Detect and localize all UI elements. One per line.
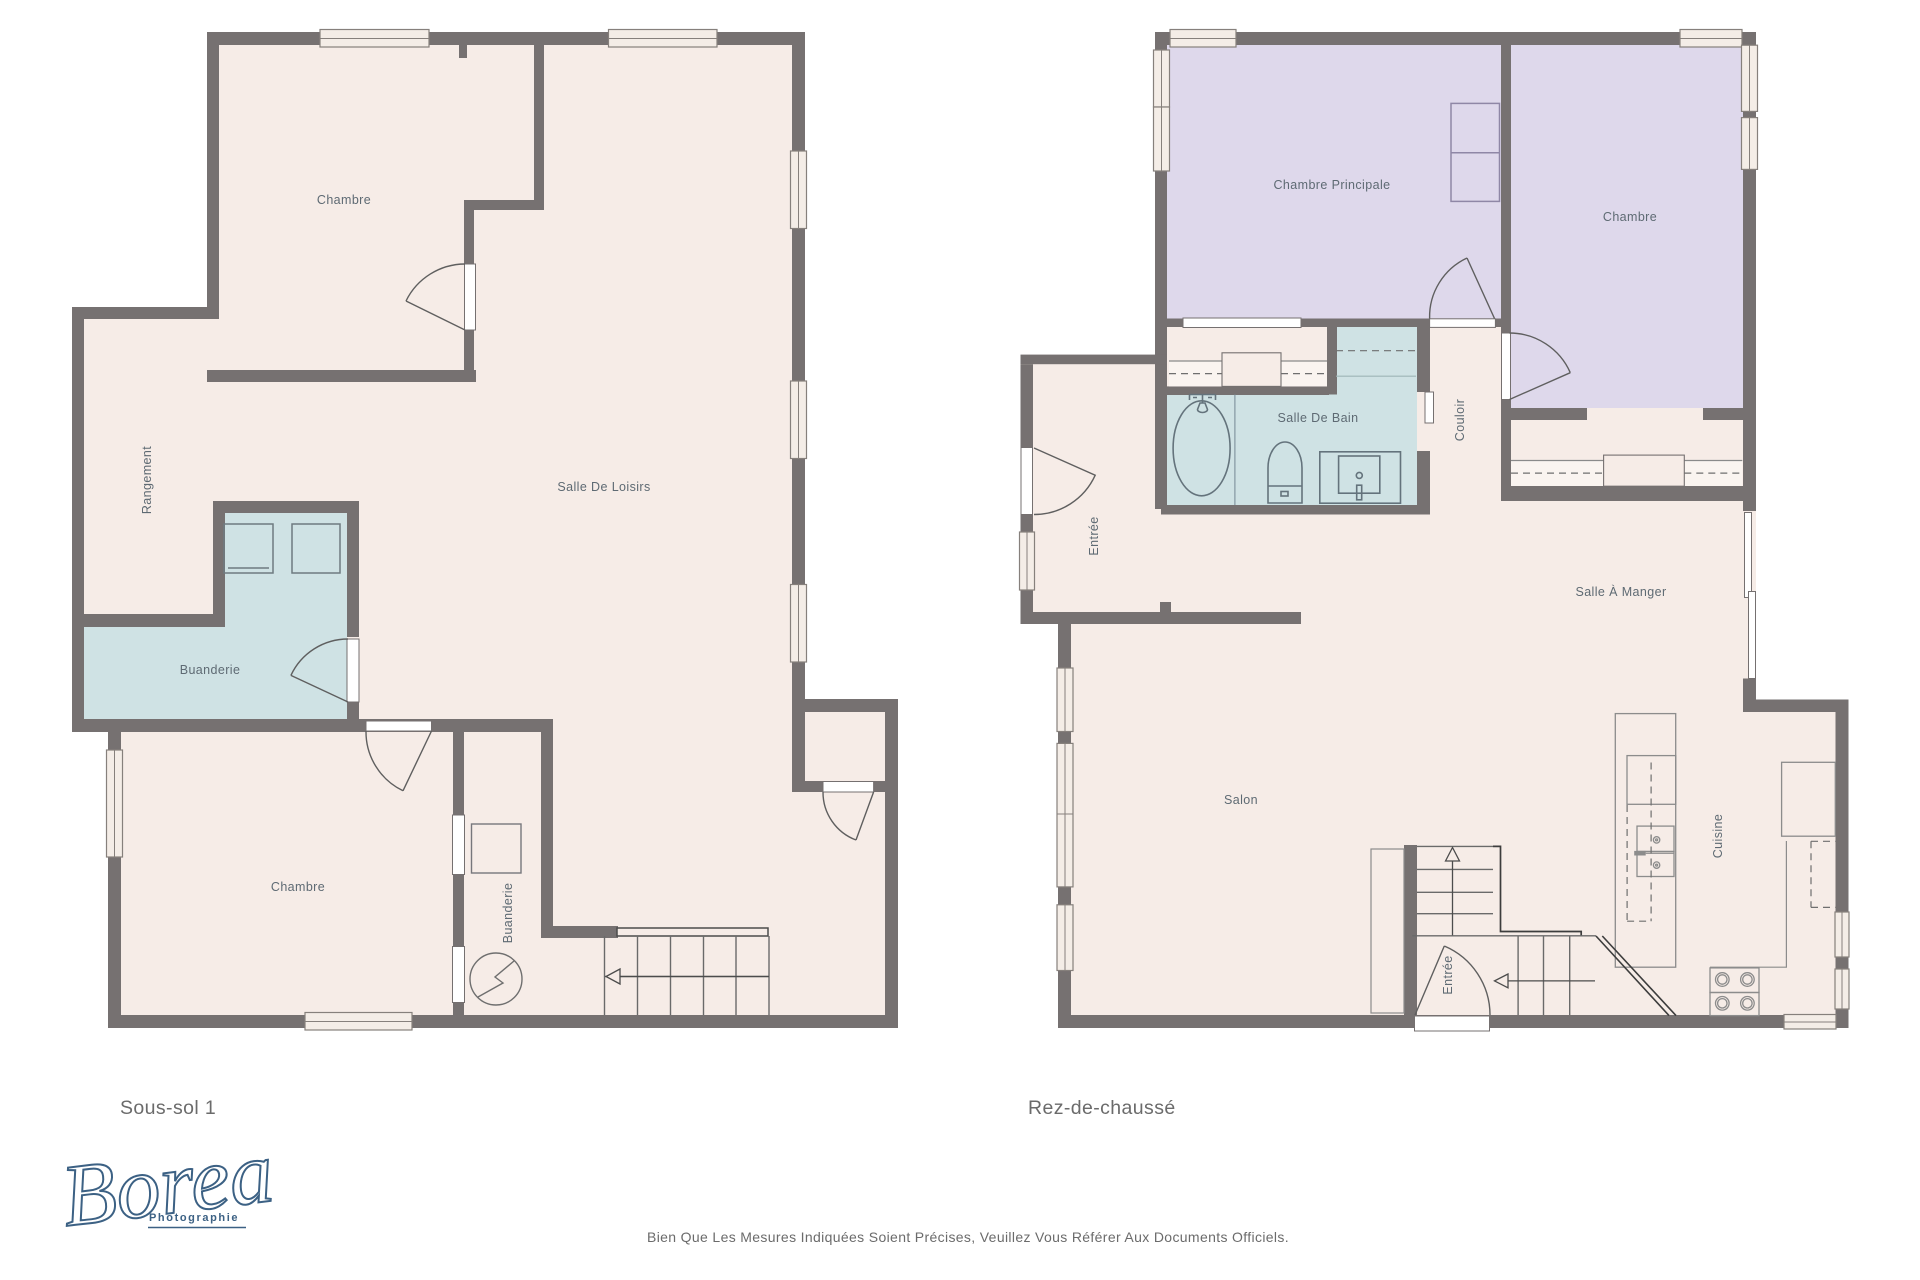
svg-text:Salle De Loisirs: Salle De Loisirs xyxy=(557,480,650,494)
svg-text:Couloir: Couloir xyxy=(1453,399,1467,441)
svg-text:Salle À Manger: Salle À Manger xyxy=(1575,584,1666,599)
svg-text:Salon: Salon xyxy=(1224,793,1258,807)
svg-text:Chambre: Chambre xyxy=(271,880,325,894)
svg-text:Salle De Bain: Salle De Bain xyxy=(1278,411,1359,425)
svg-text:Buanderie: Buanderie xyxy=(501,883,515,944)
svg-text:Buanderie: Buanderie xyxy=(180,663,241,677)
svg-text:Sous-sol 1: Sous-sol 1 xyxy=(120,1097,216,1119)
svg-text:Cuisine: Cuisine xyxy=(1711,814,1725,859)
svg-text:Chambre: Chambre xyxy=(1603,210,1657,224)
svg-text:Chambre Principale: Chambre Principale xyxy=(1274,178,1391,192)
svg-text:Chambre: Chambre xyxy=(317,193,371,207)
svg-text:Bien Que Les Mesures Indiquées: Bien Que Les Mesures Indiquées Soient Pr… xyxy=(647,1229,1289,1245)
svg-text:Entrée: Entrée xyxy=(1087,516,1101,555)
svg-text:Entrée: Entrée xyxy=(1441,955,1455,994)
svg-text:Rangement: Rangement xyxy=(140,446,154,514)
svg-text:Rez-de-chaussé: Rez-de-chaussé xyxy=(1028,1097,1176,1119)
svg-text:Photographie: Photographie xyxy=(149,1212,239,1224)
